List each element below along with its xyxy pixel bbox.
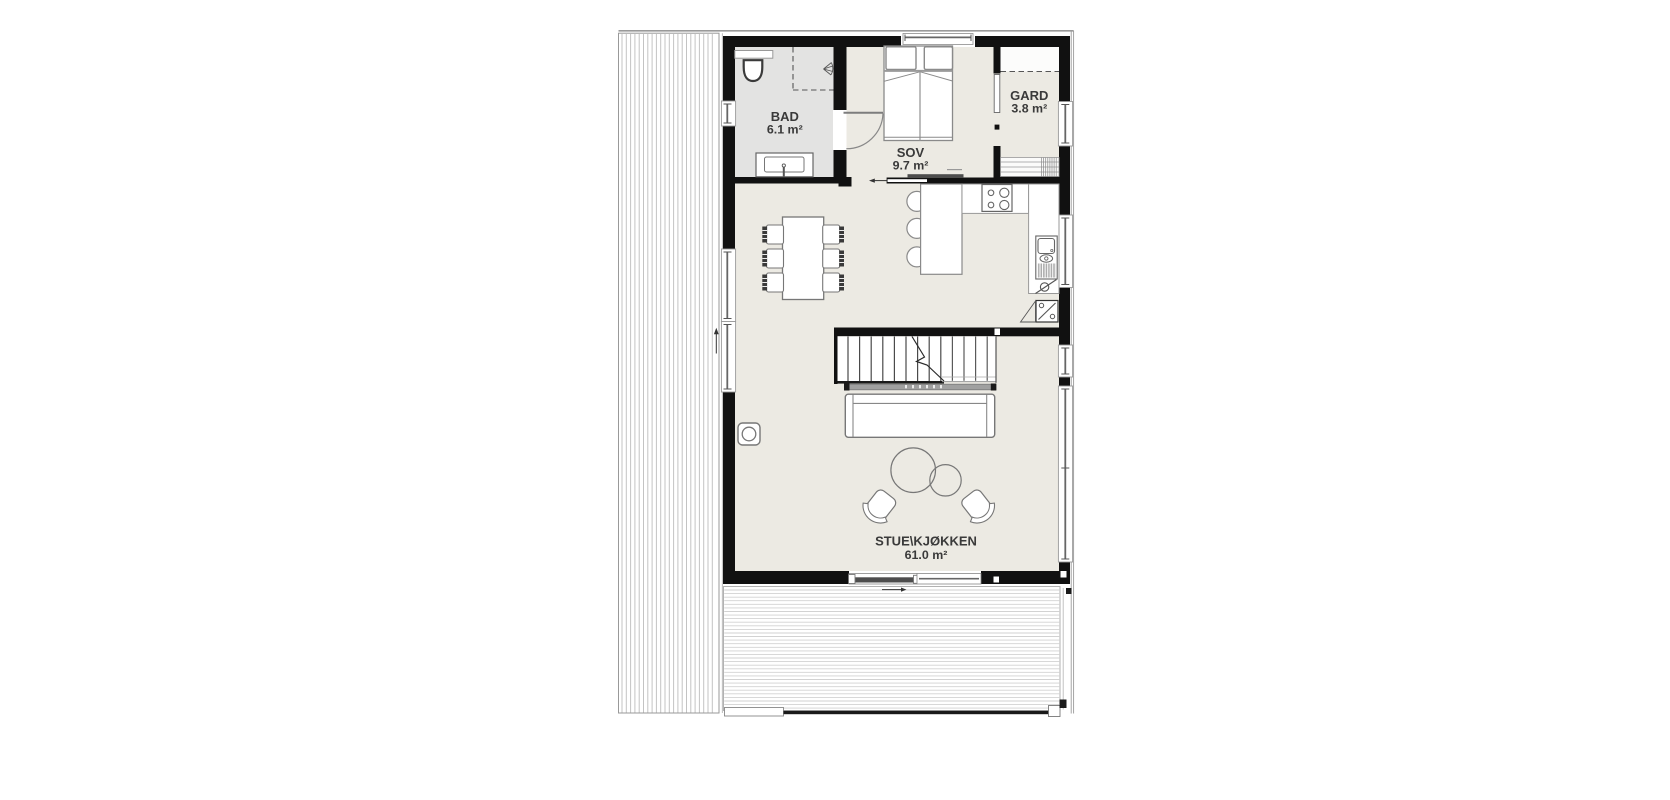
svg-text:6.1 m²: 6.1 m² — [767, 123, 803, 137]
svg-text:61.0 m²: 61.0 m² — [905, 548, 948, 562]
svg-text:3.8 m²: 3.8 m² — [1011, 102, 1047, 116]
svg-text:9.7 m²: 9.7 m² — [893, 159, 929, 173]
svg-text:STUE\KJØKKEN: STUE\KJØKKEN — [875, 534, 977, 549]
